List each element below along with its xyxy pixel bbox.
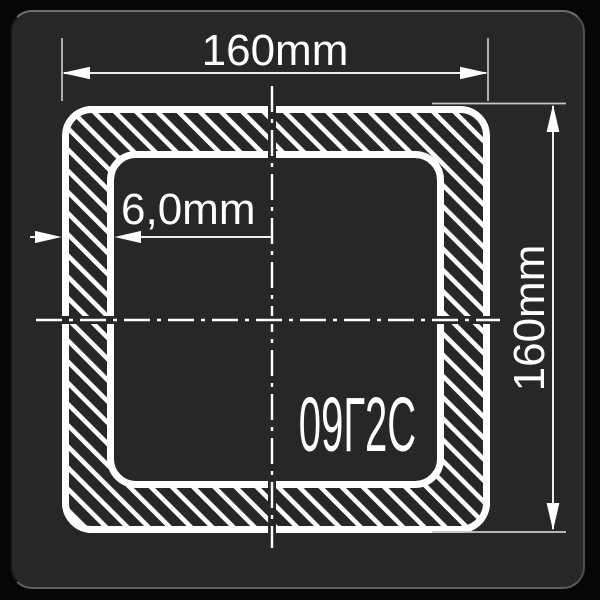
arrow-left-icon	[62, 67, 90, 79]
arrow-up-icon	[547, 105, 560, 133]
tube-cross-section-drawing: 160mm 160mm 6,0mm 09Г2С	[0, 0, 600, 600]
height-dimension-label: 160mm	[505, 245, 554, 392]
thickness-dimension-label: 6,0mm	[121, 185, 255, 234]
width-dimension-label: 160mm	[202, 26, 349, 75]
material-grade-label: 09Г2С	[299, 382, 416, 469]
arrow-down-icon	[547, 503, 560, 531]
screenshot-canvas: 160mm 160mm 6,0mm 09Г2С	[0, 0, 600, 600]
arrow-right-icon	[460, 67, 488, 79]
arrow-right-small-icon	[35, 231, 62, 243]
